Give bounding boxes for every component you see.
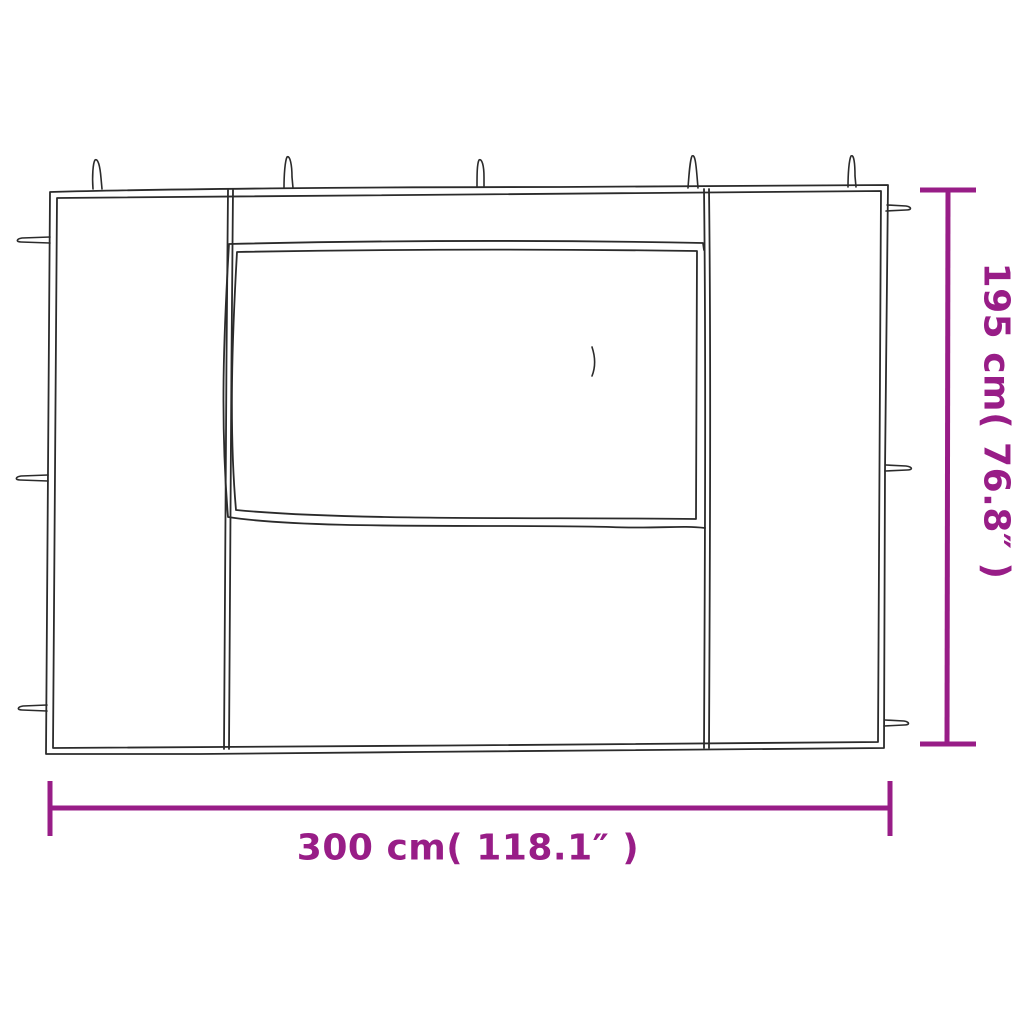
top-tab-1 — [93, 160, 102, 189]
height-dimension-label: 195 cm( 76.8″ ) — [976, 263, 1017, 580]
window-inner-outline — [232, 250, 697, 519]
wall-outer-edge — [46, 185, 888, 754]
right-tabs — [884, 205, 911, 726]
top-tab-5 — [848, 156, 856, 187]
right-panel-seam-inner — [709, 189, 710, 748]
right-tab-2 — [885, 465, 911, 471]
top-tab-4 — [688, 156, 698, 188]
left-tab-1 — [17, 237, 50, 243]
left-tab-3 — [18, 705, 47, 711]
left-panel-seam-inner — [229, 190, 233, 749]
top-tab-3 — [477, 160, 484, 187]
left-tabs — [16, 237, 50, 711]
height-dimension-line — [920, 190, 976, 744]
top-tabs — [93, 156, 856, 189]
window-outer-outline — [223, 241, 705, 528]
left-tab-2 — [16, 475, 48, 481]
right-panel-seam — [704, 189, 705, 748]
top-tab-2 — [284, 157, 293, 188]
zipper-pull-mark — [592, 347, 595, 376]
sidewall-outline-group — [16, 156, 911, 754]
right-tab-1 — [886, 205, 911, 211]
dimension-lines-group — [50, 190, 976, 836]
right-tab-3 — [884, 720, 909, 726]
width-dimension-label: 300 cm( 118.1″ ) — [297, 828, 639, 869]
wall-inner-edge — [53, 191, 881, 748]
sidewall-drawing — [0, 0, 1024, 1024]
product-dimension-diagram: 300 cm( 118.1″ ) 195 cm( 76.8″ ) — [0, 0, 1024, 1024]
height-dimension-shaft — [947, 191, 948, 743]
